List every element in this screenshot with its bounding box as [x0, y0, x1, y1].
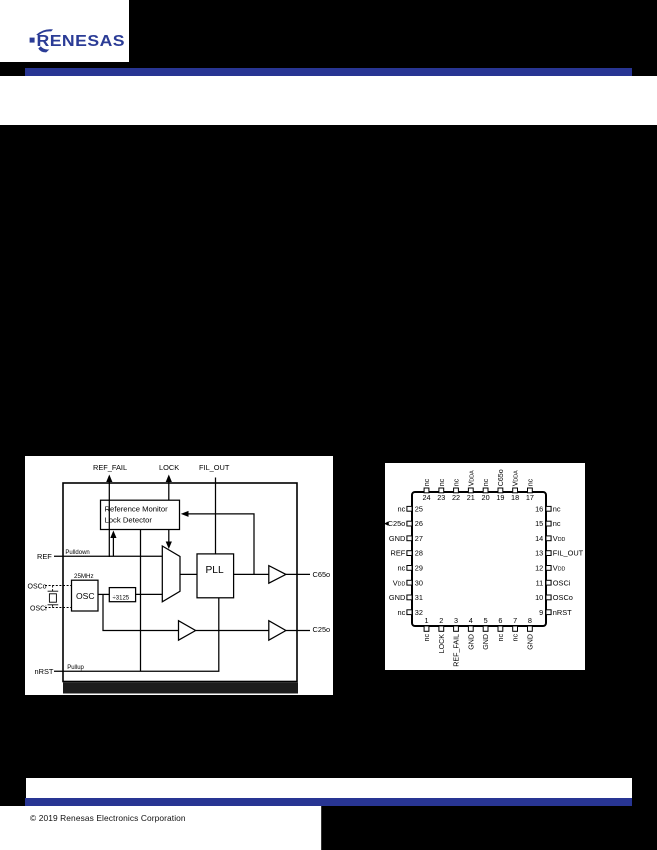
- svg-text:GND: GND: [482, 634, 490, 650]
- svg-text:6: 6: [498, 616, 502, 625]
- svg-text:4: 4: [469, 616, 473, 625]
- svg-text:12: 12: [535, 564, 543, 573]
- svg-text:VDD: VDD: [553, 564, 566, 573]
- svg-text:20: 20: [482, 493, 490, 502]
- svg-text:REF: REF: [391, 549, 406, 558]
- svg-text:VDDA: VDDA: [512, 470, 520, 486]
- svg-text:OSCo: OSCo: [553, 593, 573, 602]
- svg-text:8: 8: [528, 616, 532, 625]
- svg-text:14: 14: [535, 534, 543, 543]
- svg-text:GND: GND: [389, 534, 405, 543]
- svg-text:17: 17: [526, 493, 534, 502]
- svg-text:nc: nc: [397, 608, 405, 617]
- svg-text:OSCi: OSCi: [553, 578, 571, 587]
- svg-text:nc: nc: [453, 478, 461, 486]
- svg-text:28: 28: [415, 549, 423, 558]
- svg-text:31: 31: [415, 593, 423, 602]
- svg-text:9: 9: [539, 608, 543, 617]
- svg-text:PLL: PLL: [206, 565, 224, 576]
- svg-text:29: 29: [415, 564, 423, 573]
- svg-text:REF_FAIL: REF_FAIL: [453, 634, 461, 667]
- svg-text:Pullup: Pullup: [67, 665, 84, 671]
- svg-text:LOCK: LOCK: [438, 634, 446, 654]
- svg-text:18: 18: [511, 493, 519, 502]
- svg-text:LOCK: LOCK: [159, 463, 179, 472]
- svg-text:nc: nc: [438, 478, 446, 486]
- svg-text:19: 19: [496, 493, 504, 502]
- svg-text:26: 26: [415, 519, 423, 528]
- svg-text:nc: nc: [527, 478, 535, 486]
- svg-text:VDD: VDD: [393, 578, 406, 587]
- svg-text:2: 2: [439, 616, 443, 625]
- svg-text:nc: nc: [397, 564, 405, 573]
- svg-text:VDD: VDD: [553, 534, 566, 543]
- svg-text:7: 7: [513, 616, 517, 625]
- svg-text:C65o: C65o: [313, 570, 331, 579]
- svg-text:OSCo: OSCo: [28, 584, 47, 591]
- svg-text:24: 24: [422, 493, 430, 502]
- svg-text:13: 13: [535, 549, 543, 558]
- svg-text:÷3125: ÷3125: [113, 596, 130, 602]
- svg-text:C25o: C25o: [313, 625, 331, 634]
- svg-text:nc: nc: [553, 504, 561, 513]
- svg-text:C25o: C25o: [388, 519, 406, 528]
- svg-text:32: 32: [415, 608, 423, 617]
- svg-text:REF_FAIL: REF_FAIL: [93, 463, 127, 472]
- svg-text:10: 10: [535, 593, 543, 602]
- svg-text:nc: nc: [423, 634, 431, 642]
- svg-text:Reference Monitor: Reference Monitor: [105, 504, 169, 513]
- svg-text:16: 16: [535, 504, 543, 513]
- svg-text:C65o: C65o: [497, 469, 505, 486]
- svg-text:VDDA: VDDA: [467, 470, 475, 486]
- svg-text:OSC: OSC: [76, 591, 95, 601]
- svg-text:nRST: nRST: [553, 608, 572, 617]
- svg-text:GND: GND: [527, 634, 535, 650]
- svg-text:REF: REF: [37, 552, 52, 561]
- svg-text:GND: GND: [467, 634, 475, 650]
- svg-text:Pulldown: Pulldown: [65, 550, 89, 556]
- svg-text:RENESAS: RENESAS: [37, 33, 126, 50]
- svg-text:3: 3: [454, 616, 458, 625]
- svg-text:nc: nc: [553, 519, 561, 528]
- svg-text:25: 25: [415, 504, 423, 513]
- svg-text:GND: GND: [389, 593, 405, 602]
- svg-text:OSCi: OSCi: [30, 606, 47, 613]
- svg-text:11: 11: [536, 578, 544, 587]
- svg-text:FIL_OUT: FIL_OUT: [199, 463, 230, 472]
- svg-text:nc: nc: [512, 634, 520, 642]
- svg-text:27: 27: [415, 534, 423, 543]
- svg-text:23: 23: [437, 493, 445, 502]
- svg-text:FIL_OUT: FIL_OUT: [553, 549, 584, 558]
- svg-text:nRST: nRST: [35, 667, 54, 676]
- svg-text:nc: nc: [482, 478, 490, 486]
- svg-text:15: 15: [535, 519, 543, 528]
- svg-text:nc: nc: [397, 504, 405, 513]
- svg-text:25MHz: 25MHz: [74, 573, 94, 580]
- svg-text:nc: nc: [423, 478, 431, 486]
- svg-text:30: 30: [415, 578, 423, 587]
- svg-text:22: 22: [452, 493, 460, 502]
- svg-text:21: 21: [467, 493, 475, 502]
- svg-text:1: 1: [424, 616, 428, 625]
- svg-text:nc: nc: [497, 634, 505, 642]
- svg-text:Lock Detector: Lock Detector: [105, 515, 153, 524]
- svg-text:5: 5: [484, 616, 488, 625]
